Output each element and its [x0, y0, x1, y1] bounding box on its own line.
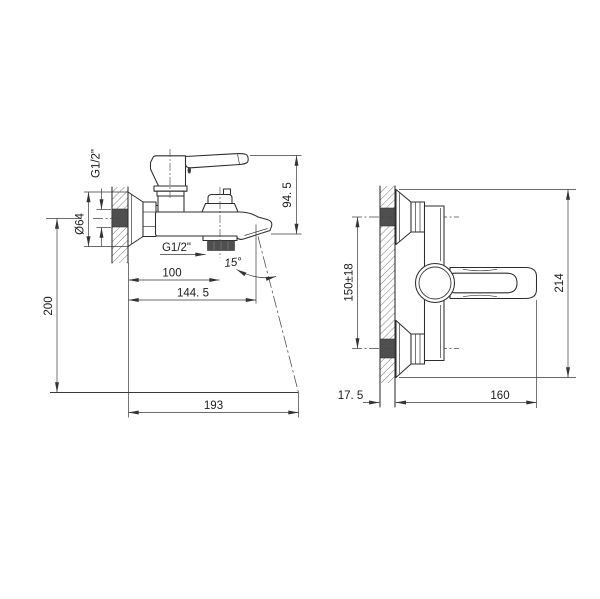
dim-overall-height: 214: [554, 273, 566, 293]
mixer-body-front: [396, 190, 537, 378]
dim-wall-to-outlet: 100: [162, 268, 181, 280]
dim-top-thread: G1/2": [90, 149, 102, 178]
front-view: 150±18 214 17. 5 160: [338, 186, 576, 408]
dim-supply-centers: 150±18: [343, 263, 355, 301]
dim-bottom-thread: G1/2": [162, 242, 191, 254]
technical-drawing-page: G1/2" Ø64 94. 5 G1/2" 100 144. 5 15°: [0, 0, 600, 599]
spout-body: [156, 212, 272, 239]
supply-pipe-section: [112, 209, 128, 227]
faucet-installation-drawing: G1/2" Ø64 94. 5 G1/2" 100 144. 5 15°: [0, 0, 600, 599]
dim-total-projection: 193: [204, 400, 223, 412]
dim-spout-angle: 15°: [224, 256, 243, 270]
water-stream-line: [258, 237, 299, 393]
dim-body-projection: 160: [490, 390, 509, 402]
side-view: G1/2" Ø64 94. 5 G1/2" 100 144. 5 15°: [43, 149, 302, 418]
cartridge-cap: [416, 264, 455, 303]
dim-center-to-floor: 200: [43, 296, 55, 315]
temp-indicator: [188, 167, 191, 173]
dim-wall-to-spout: 144. 5: [177, 288, 209, 300]
wall-section-front: [380, 186, 395, 407]
upper-escutcheon: [396, 190, 411, 245]
dim-height-to-spout: 94. 5: [282, 182, 294, 208]
dim-wall-thickness: 17. 5: [338, 390, 364, 402]
dim-flange-diameter: Ø64: [74, 213, 86, 235]
lever-inner-slot: [447, 273, 517, 293]
lower-escutcheon: [396, 321, 411, 378]
wall-section-side: [112, 187, 128, 263]
handle-base: [151, 156, 186, 186]
